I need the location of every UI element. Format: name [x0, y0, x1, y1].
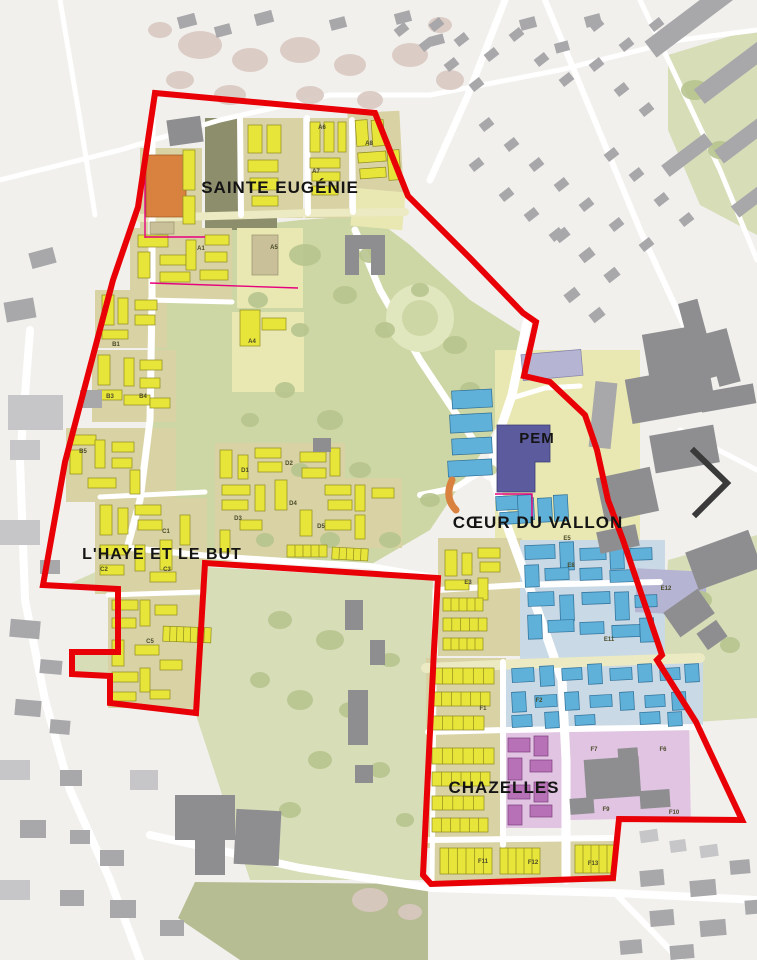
parcel-label-b3: B3	[106, 394, 114, 400]
parcel-label-b4: B4	[139, 394, 147, 400]
parcel-label-d5: D5	[317, 524, 325, 530]
parcel-label-e8: E8	[567, 563, 575, 569]
parcel-label-d3: D3	[234, 516, 242, 522]
parcel-label-a4: A4	[248, 339, 256, 345]
parcel-label-e5: E5	[563, 536, 571, 542]
parcel-label-d1: D1	[241, 468, 249, 474]
parcel-label-f10: F10	[669, 810, 680, 816]
masterplan-map: A1A4A5A6A7A8B1B3B4B5C1C2C3C5D1D2D3D4D5E3…	[0, 0, 757, 960]
parcel-label-e11: E11	[604, 637, 615, 643]
parcel-label-d4: D4	[289, 501, 297, 507]
parcel-label-f1: F1	[479, 706, 487, 712]
parcel-label-c1: C1	[162, 529, 170, 535]
parcel-label-f13: F13	[588, 861, 599, 867]
parcel-label-e12: E12	[661, 586, 672, 592]
parcel-label-a7: A7	[312, 169, 320, 175]
zone-label-sainte-eugenie: SAINTE EUGÉNIE	[201, 178, 359, 197]
parcel-label-a1: A1	[197, 246, 205, 252]
zone-label-coeur-du-vallon: CŒUR DU VALLON	[453, 513, 623, 532]
parcel-label-a6: A6	[318, 125, 326, 131]
parcel-label-e3: E3	[464, 580, 472, 586]
parcel-label-f2: F2	[535, 698, 543, 704]
parcel-label-f7: F7	[590, 747, 598, 753]
zone-label-l-haye-et-le-but: L'HAYE ET LE BUT	[82, 546, 242, 563]
parcel-label-f12: F12	[528, 860, 539, 866]
parcel-label-b1: B1	[112, 342, 120, 348]
parcel-label-d2: D2	[285, 461, 293, 467]
map-canvas: A1A4A5A6A7A8B1B3B4B5C1C2C3C5D1D2D3D4D5E3…	[0, 0, 757, 960]
parcel-label-c2: C2	[100, 567, 108, 573]
parcel-label-f6: F6	[659, 747, 667, 753]
parcel-label-b5: B5	[79, 449, 87, 455]
zone-label-chazelles: CHAZELLES	[449, 778, 560, 797]
parcel-label-c3: C3	[163, 567, 171, 573]
zone-label-pem: PEM	[519, 430, 555, 447]
parcel-label-f11: F11	[478, 859, 489, 865]
parcel-label-a8: A8	[365, 141, 373, 147]
parcel-label-a5: A5	[270, 245, 278, 251]
parcel-label-c5: C5	[146, 639, 154, 645]
parcel-label-f9: F9	[602, 807, 610, 813]
